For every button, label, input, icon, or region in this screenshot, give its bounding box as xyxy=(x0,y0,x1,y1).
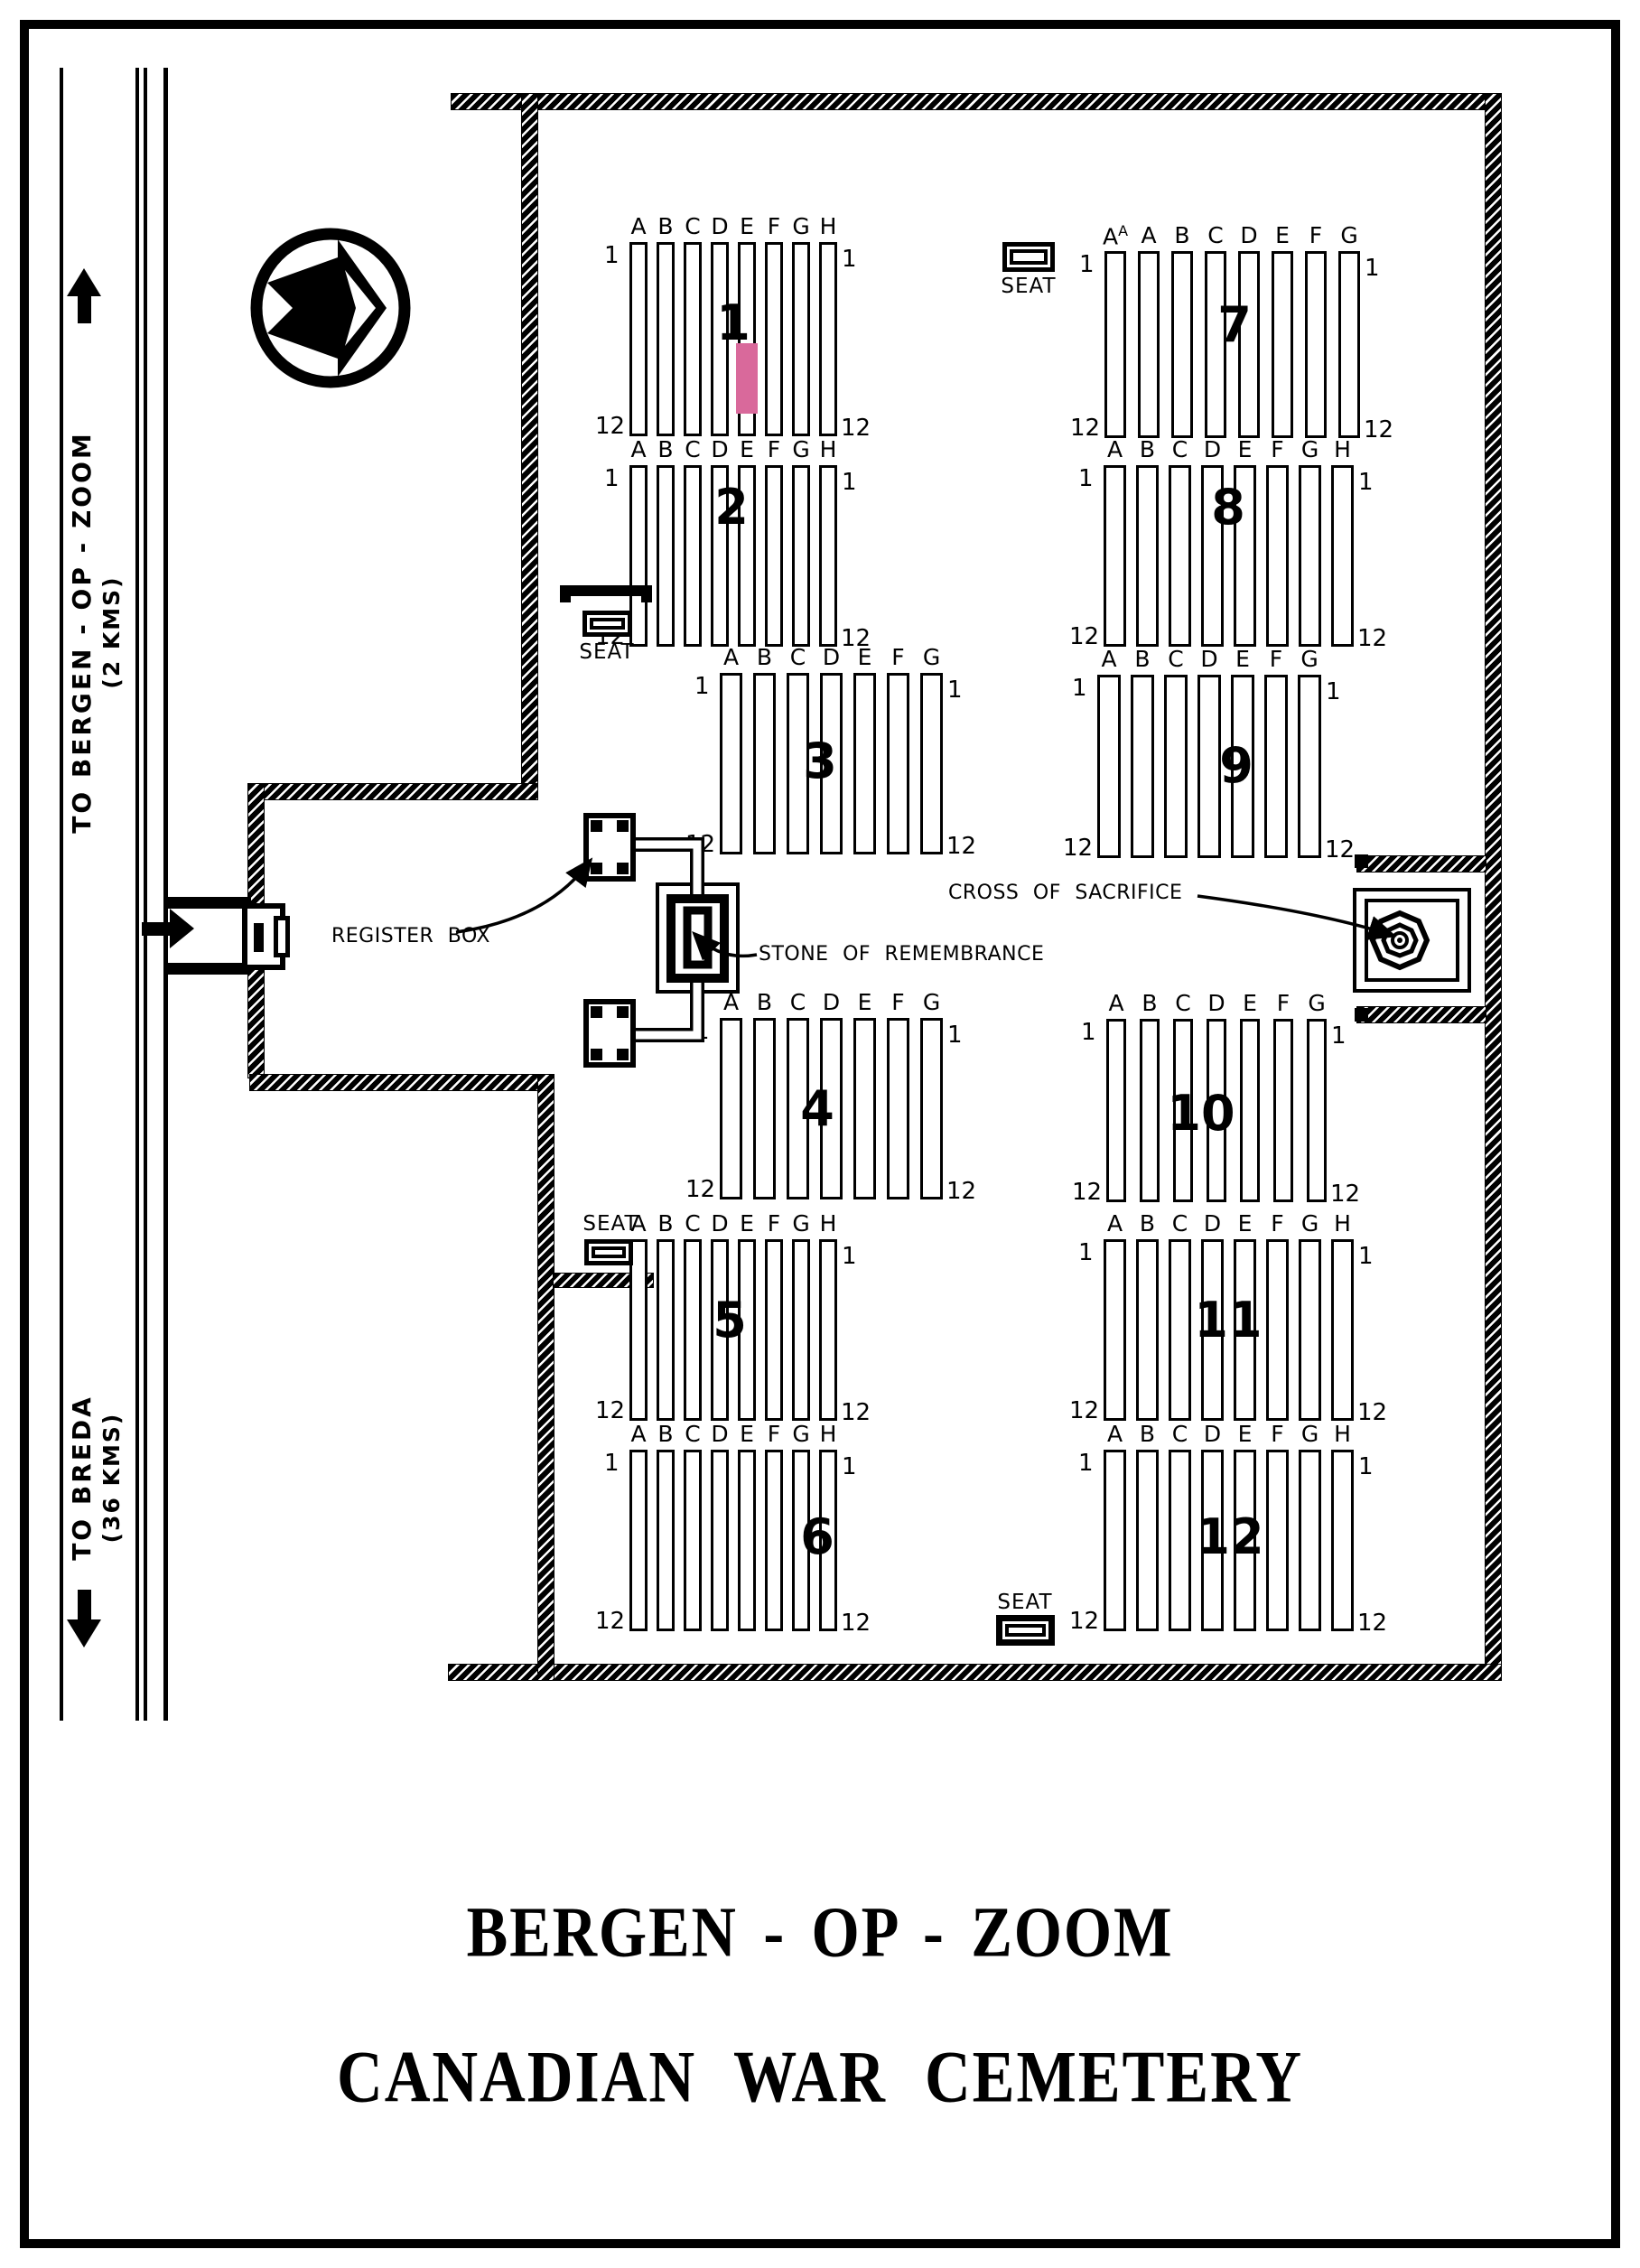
plot-4-rowlabel-top-right: 1 xyxy=(947,1023,963,1047)
plot-12-letter-A: A xyxy=(1107,1423,1123,1445)
plot-3-row-E xyxy=(853,673,876,854)
plot-12-row-G xyxy=(1299,1450,1321,1631)
plot-9-letter-A: A xyxy=(1101,648,1116,670)
plot-12-rowlabel-bottom-right: 12 xyxy=(1357,1611,1387,1635)
plot-6-letter-F: F xyxy=(768,1423,780,1445)
seat-label: SEAT xyxy=(997,1591,1052,1614)
seat-icon xyxy=(584,1239,633,1265)
plot-10-rowlabel-bottom-left: 12 xyxy=(1072,1181,1102,1204)
plot-4-letter-A: A xyxy=(723,991,739,1013)
plot-11-letter-E: E xyxy=(1238,1212,1253,1235)
plot-2-rowlabel-top-left: 1 xyxy=(604,467,620,490)
plot-8-rowlabel-bottom-left: 12 xyxy=(1069,625,1099,649)
plot-3-rowlabel-top-right: 1 xyxy=(947,678,963,702)
plot-8-letter-C: C xyxy=(1172,438,1188,461)
plot-7-rowlabel-top-left: 1 xyxy=(1079,253,1095,276)
plot-1-row-G xyxy=(792,242,810,436)
plot-7-letter-E: E xyxy=(1275,224,1290,247)
plot-11-row-F xyxy=(1266,1239,1289,1421)
plot-1-rowlabel-bottom-right: 12 xyxy=(841,416,871,440)
plot-10-letter-D: D xyxy=(1207,992,1225,1014)
plot-4-rowlabel-bottom-right: 12 xyxy=(946,1180,976,1203)
plot-8-letter-B: B xyxy=(1140,438,1155,461)
plot-1-letter-A: A xyxy=(630,215,646,238)
plot-2: ABCDEFGH1112122 xyxy=(629,465,837,647)
plot-7-letter-F: F xyxy=(1309,224,1322,247)
plot-10-row-A xyxy=(1106,1019,1126,1202)
plot-7-row-E xyxy=(1272,251,1293,438)
plot-10: ABCDEFG11121210 xyxy=(1106,1019,1327,1202)
plot-2-letter-G: G xyxy=(792,438,809,461)
plot-10-row-B xyxy=(1140,1019,1160,1202)
plot-5-letter-C: C xyxy=(685,1212,700,1235)
plot-2-letter-E: E xyxy=(740,438,754,461)
plot-10-row-G xyxy=(1307,1019,1327,1202)
plot-4-letter-B: B xyxy=(757,991,772,1013)
map-subtitle: CANADIAN WAR CEMETERY xyxy=(337,2036,1303,2121)
plot-5-letter-B: B xyxy=(657,1212,673,1235)
plot-9-row-A xyxy=(1097,675,1121,858)
plot-9-letter-C: C xyxy=(1168,648,1183,670)
seat-icon xyxy=(582,611,632,637)
plot-11-rowlabel-bottom-left: 12 xyxy=(1069,1399,1099,1423)
plot-1-letter-E: E xyxy=(740,215,754,238)
plot-11-rowlabel-top-right: 1 xyxy=(1358,1245,1374,1268)
plot-11-row-A xyxy=(1104,1239,1126,1421)
plot-6-letter-A: A xyxy=(630,1423,646,1445)
plot-9-rowlabel-top-right: 1 xyxy=(1326,680,1341,704)
plot-2-row-C xyxy=(684,465,702,647)
plot-7-letter-C: C xyxy=(1207,224,1223,247)
plot-3-row-A xyxy=(720,673,742,854)
plot-7-rowlabel-bottom-left: 12 xyxy=(1070,416,1100,440)
plot-11-row-C xyxy=(1169,1239,1191,1421)
plot-8-row-C xyxy=(1169,465,1191,647)
plot-5: ABCDEFGH1112125 xyxy=(629,1239,837,1421)
plot-8-letter-F: F xyxy=(1271,438,1283,461)
stone-of-remembrance-label: STONE OF REMEMBRANCE xyxy=(759,943,1044,966)
plot-12-letter-H: H xyxy=(1334,1423,1351,1445)
plot-6-letter-E: E xyxy=(740,1423,754,1445)
cross-of-sacrifice-label: CROSS OF SACRIFICE xyxy=(948,882,1182,904)
plot-10-letter-F: F xyxy=(1277,992,1290,1014)
plot-11-rowlabel-bottom-right: 12 xyxy=(1357,1401,1387,1424)
plot-6-letter-G: G xyxy=(792,1423,809,1445)
plot-1-row-H xyxy=(819,242,837,436)
plot-1-row-A xyxy=(629,242,648,436)
plot-12-letter-C: C xyxy=(1172,1423,1188,1445)
plot-2-letter-B: B xyxy=(657,438,673,461)
plot-4: ABCDEFG1112124 xyxy=(720,1018,943,1199)
plot-5-letter-F: F xyxy=(768,1212,780,1235)
plot-1-letter-D: D xyxy=(711,215,728,238)
plot-3-row-B xyxy=(753,673,776,854)
seat-icon xyxy=(996,1615,1055,1646)
plot-10-rowlabel-bottom-right: 12 xyxy=(1330,1182,1360,1206)
plot-12-letter-E: E xyxy=(1238,1423,1253,1445)
plot-2-row-A xyxy=(629,465,648,647)
plot-6-rowlabel-top-right: 1 xyxy=(842,1455,857,1479)
plot-5-number: 5 xyxy=(713,1296,747,1345)
plot-11-row-H xyxy=(1331,1239,1354,1421)
plot-10-number: 10 xyxy=(1167,1089,1235,1138)
plot-11-row-G xyxy=(1299,1239,1321,1421)
plot-4-letter-E: E xyxy=(858,991,872,1013)
plot-9-letter-E: E xyxy=(1235,648,1250,670)
plot-1-highlighted-grave xyxy=(736,343,758,414)
plot-10-letter-G: G xyxy=(1308,992,1325,1014)
plot-9-number: 9 xyxy=(1219,742,1253,790)
plot-11-letter-D: D xyxy=(1204,1212,1221,1235)
plot-3-letter-E: E xyxy=(858,646,872,668)
plot-5-rowlabel-top-right: 1 xyxy=(842,1245,857,1268)
plot-6-row-C xyxy=(684,1450,702,1631)
plot-1-row-F xyxy=(765,242,783,436)
plot-4-rowlabel-top-left: 1 xyxy=(694,1020,710,1043)
plot-11: ABCDEFGH11121211 xyxy=(1104,1239,1354,1421)
plot-4-row-E xyxy=(853,1018,876,1199)
plot-8-row-F xyxy=(1266,465,1289,647)
plot-5-letter-E: E xyxy=(740,1212,754,1235)
plot-12-row-H xyxy=(1331,1450,1354,1631)
plot-5-rowlabel-bottom-left: 12 xyxy=(595,1399,625,1423)
plot-10-letter-C: C xyxy=(1175,992,1190,1014)
plot-6-letter-C: C xyxy=(685,1423,700,1445)
plot-7-letter-AA: AA xyxy=(1103,224,1128,247)
plot-9-row-C xyxy=(1164,675,1188,858)
plot-8-rowlabel-top-left: 1 xyxy=(1078,467,1094,490)
plot-9: ABCDEFG1112129 xyxy=(1097,675,1321,858)
plot-12-row-C xyxy=(1169,1450,1191,1631)
plot-4-letter-C: C xyxy=(790,991,806,1013)
plot-1-letter-C: C xyxy=(685,215,700,238)
register-box-icon-upper xyxy=(583,813,636,882)
plot-4-rowlabel-bottom-left: 12 xyxy=(685,1178,715,1201)
plot-11-letter-F: F xyxy=(1271,1212,1283,1235)
plot-8-row-A xyxy=(1104,465,1126,647)
plot-9-row-D xyxy=(1197,675,1221,858)
seat-icon xyxy=(1002,242,1055,272)
plot-2-row-G xyxy=(792,465,810,647)
plot-7-letter-B: B xyxy=(1174,224,1189,247)
plot-3-number: 3 xyxy=(803,737,837,786)
plot-12-letter-D: D xyxy=(1204,1423,1221,1445)
plot-12-row-F xyxy=(1266,1450,1289,1631)
plot-10-letter-B: B xyxy=(1141,992,1157,1014)
plot-6-rowlabel-bottom-right: 12 xyxy=(841,1611,871,1635)
plot-12: ABCDEFGH11121212 xyxy=(1104,1450,1354,1631)
plot-3-letter-C: C xyxy=(790,646,806,668)
plot-11-letter-H: H xyxy=(1334,1212,1351,1235)
plot-2-letter-A: A xyxy=(630,438,646,461)
plot-8-row-G xyxy=(1299,465,1321,647)
plot-11-letter-G: G xyxy=(1301,1212,1319,1235)
plot-11-letter-B: B xyxy=(1140,1212,1155,1235)
plot-11-rowlabel-top-left: 1 xyxy=(1078,1241,1094,1265)
plot-1-rowlabel-bottom-left: 12 xyxy=(595,415,625,438)
plot-2-row-F xyxy=(765,465,783,647)
map-title: BERGEN - OP - ZOOM xyxy=(467,1891,1174,1974)
plot-5-row-C xyxy=(684,1239,702,1421)
plot-1-number: 1 xyxy=(716,299,750,348)
plot-7-row-A xyxy=(1138,251,1160,438)
plot-7-letter-A: A xyxy=(1141,224,1156,247)
plot-6-row-D xyxy=(711,1450,729,1631)
plot-8-letter-D: D xyxy=(1204,438,1221,461)
plot-1-row-C xyxy=(684,242,702,436)
plot-10-rowlabel-top-left: 1 xyxy=(1081,1021,1096,1044)
plot-7-rowlabel-top-right: 1 xyxy=(1365,257,1380,280)
plot-4-row-G xyxy=(920,1018,943,1199)
seat-label: SEAT xyxy=(582,1212,638,1236)
plot-3-letter-D: D xyxy=(823,646,840,668)
plot-7-row-F xyxy=(1305,251,1327,438)
plot-12-rowlabel-bottom-left: 12 xyxy=(1069,1610,1099,1633)
seat-label: SEAT xyxy=(1001,275,1056,298)
plot-7-letter-D: D xyxy=(1240,224,1257,247)
plot-6-row-F xyxy=(765,1450,783,1631)
plot-5-row-A xyxy=(629,1239,648,1421)
plot-10-letter-A: A xyxy=(1108,992,1123,1014)
plot-4-letter-G: G xyxy=(923,991,940,1013)
plot-8-rowlabel-top-right: 1 xyxy=(1358,471,1374,494)
plot-9-letter-F: F xyxy=(1270,648,1282,670)
plot-9-letter-D: D xyxy=(1200,648,1217,670)
plot-1-row-B xyxy=(657,242,675,436)
plot-11-row-B xyxy=(1136,1239,1159,1421)
plot-10-letter-E: E xyxy=(1243,992,1257,1014)
plot-5-letter-H: H xyxy=(820,1212,837,1235)
cemetery-plan-page: TO BERGEN - OP - ZOOM (2 KMS) TO BREDA (… xyxy=(0,0,1640,2268)
plot-12-row-B xyxy=(1136,1450,1159,1631)
plot-1-letter-B: B xyxy=(657,215,673,238)
plot-4-letter-D: D xyxy=(823,991,840,1013)
plot-7-row-AA xyxy=(1104,251,1126,438)
plot-10-row-E xyxy=(1240,1019,1260,1202)
plot-6-row-B xyxy=(657,1450,675,1631)
plot-6: ABCDEFGH1112126 xyxy=(629,1450,837,1631)
plot-6-letter-D: D xyxy=(711,1423,728,1445)
plot-9-rowlabel-bottom-right: 12 xyxy=(1325,838,1355,862)
plot-8-letter-G: G xyxy=(1301,438,1319,461)
plot-9-letter-B: B xyxy=(1134,648,1150,670)
plot-11-letter-C: C xyxy=(1172,1212,1188,1235)
plot-12-letter-B: B xyxy=(1140,1423,1155,1445)
plot-6-number: 6 xyxy=(800,1513,834,1562)
plot-1-letter-F: F xyxy=(768,215,780,238)
register-box-icon-lower xyxy=(583,999,636,1068)
plot-1-rowlabel-top-right: 1 xyxy=(842,247,857,271)
plot-8-letter-A: A xyxy=(1107,438,1123,461)
plot-4-letter-F: F xyxy=(891,991,904,1013)
plot-5-row-G xyxy=(792,1239,810,1421)
plot-5-letter-D: D xyxy=(711,1212,728,1235)
plot-2-row-B xyxy=(657,465,675,647)
plot-2-letter-C: C xyxy=(685,438,700,461)
plot-7-rowlabel-bottom-right: 12 xyxy=(1364,418,1393,442)
plot-9-rowlabel-bottom-left: 12 xyxy=(1063,836,1093,860)
plot-9-row-G xyxy=(1298,675,1321,858)
plot-3-rowlabel-bottom-right: 12 xyxy=(946,835,976,858)
plot-1-letter-H: H xyxy=(820,215,837,238)
plot-4-row-A xyxy=(720,1018,742,1199)
plot-10-rowlabel-top-right: 1 xyxy=(1331,1024,1346,1048)
plot-2-row-H xyxy=(819,465,837,647)
plot-12-letter-G: G xyxy=(1301,1423,1319,1445)
plot-2-rowlabel-top-right: 1 xyxy=(842,471,857,494)
plot-1: ABCDEFGH1112121 xyxy=(629,242,837,436)
plot-3-letter-G: G xyxy=(923,646,940,668)
plot-5-row-H xyxy=(819,1239,837,1421)
plot-2-letter-D: D xyxy=(711,438,728,461)
plot-3-letter-F: F xyxy=(891,646,904,668)
plot-9-letter-G: G xyxy=(1300,648,1318,670)
plot-7-row-B xyxy=(1171,251,1193,438)
plot-8-letter-H: H xyxy=(1334,438,1351,461)
plot-8-number: 8 xyxy=(1211,483,1245,532)
plot-4-row-F xyxy=(887,1018,909,1199)
register-box-label: REGISTER BOX xyxy=(331,925,490,947)
plot-12-number: 12 xyxy=(1196,1513,1263,1562)
plot-4-number: 4 xyxy=(800,1085,834,1134)
plot-9-row-F xyxy=(1264,675,1288,858)
plot-1-rowlabel-top-left: 1 xyxy=(604,244,620,267)
plot-6-row-A xyxy=(629,1450,648,1631)
plot-7: AAABCDEFG1112127 xyxy=(1104,251,1360,438)
plot-3-letter-A: A xyxy=(723,646,739,668)
plot-3-row-G xyxy=(920,673,943,854)
plot-6-letter-B: B xyxy=(657,1423,673,1445)
plot-5-row-F xyxy=(765,1239,783,1421)
plot-12-rowlabel-top-left: 1 xyxy=(1078,1451,1094,1475)
plot-5-rowlabel-bottom-right: 12 xyxy=(841,1401,871,1424)
plot-2-letter-H: H xyxy=(820,438,837,461)
plot-1-letter-G: G xyxy=(792,215,809,238)
plot-3-rowlabel-top-left: 1 xyxy=(694,675,710,698)
plot-8-rowlabel-bottom-right: 12 xyxy=(1357,627,1387,650)
plot-7-number: 7 xyxy=(1217,301,1252,350)
plot-6-row-E xyxy=(738,1450,756,1631)
plot-8-letter-E: E xyxy=(1238,438,1253,461)
plot-3-rowlabel-bottom-left: 12 xyxy=(685,833,715,856)
plot-11-number: 11 xyxy=(1194,1296,1262,1345)
plot-3-row-F xyxy=(887,673,909,854)
plot-5-letter-G: G xyxy=(792,1212,809,1235)
seat-canopy xyxy=(560,585,652,596)
plot-11-letter-A: A xyxy=(1107,1212,1123,1235)
plot-6-rowlabel-bottom-left: 12 xyxy=(595,1610,625,1633)
plot-2-number: 2 xyxy=(714,483,749,532)
plot-12-row-A xyxy=(1104,1450,1126,1631)
plot-4-row-B xyxy=(753,1018,776,1199)
plot-3-letter-B: B xyxy=(757,646,772,668)
plot-8-row-H xyxy=(1331,465,1354,647)
plot-5-row-B xyxy=(657,1239,675,1421)
plot-9-row-B xyxy=(1131,675,1154,858)
plot-12-rowlabel-top-right: 1 xyxy=(1358,1455,1374,1479)
plot-6-rowlabel-top-left: 1 xyxy=(604,1451,620,1475)
plot-8: ABCDEFGH1112128 xyxy=(1104,465,1354,647)
plot-7-row-G xyxy=(1338,251,1360,438)
plot-12-letter-F: F xyxy=(1271,1423,1283,1445)
seat-label: SEAT xyxy=(579,640,634,664)
plot-3: ABCDEFG1112123 xyxy=(720,673,943,854)
plot-10-row-F xyxy=(1273,1019,1293,1202)
plot-6-letter-H: H xyxy=(820,1423,837,1445)
plot-9-rowlabel-top-left: 1 xyxy=(1072,677,1087,700)
plot-2-letter-F: F xyxy=(768,438,780,461)
plot-8-row-B xyxy=(1136,465,1159,647)
plot-7-letter-G: G xyxy=(1340,224,1357,247)
